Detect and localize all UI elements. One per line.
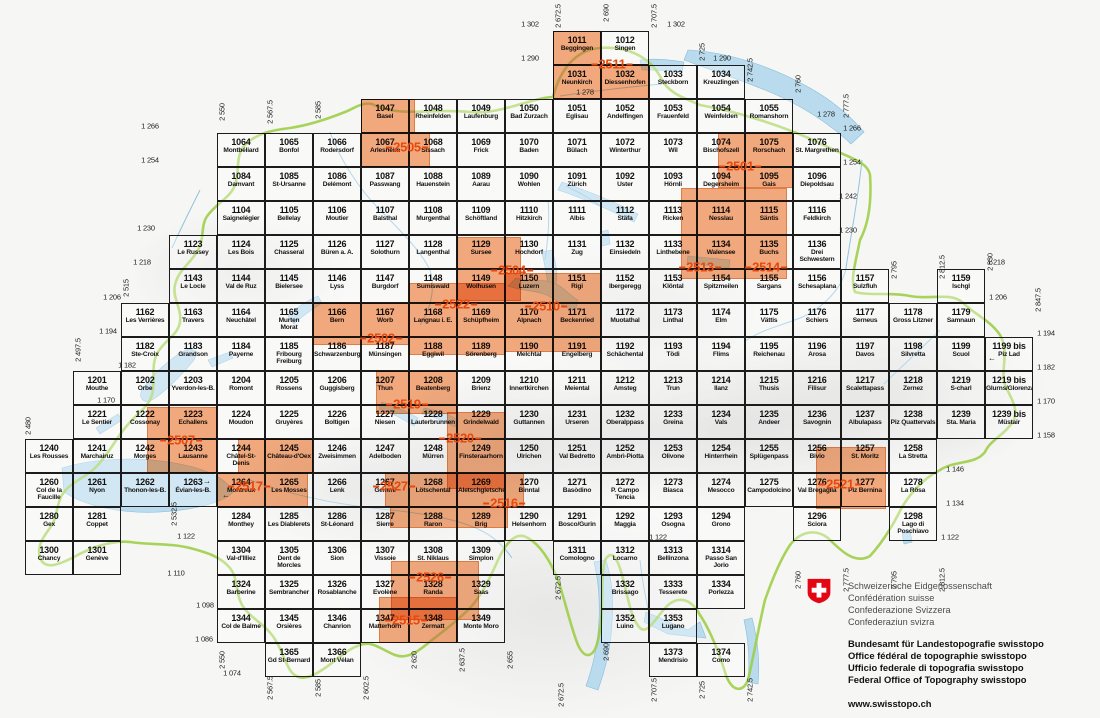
map-sheet-cell[interactable]: 1233Greina (649, 405, 697, 439)
map-sheet-cell[interactable]: 1352Luino (601, 609, 649, 643)
map-sheet-cell[interactable]: 1237Albulapass (841, 405, 889, 439)
sheet-name: Vals (698, 419, 744, 426)
sheet-name: Weinfelden (698, 113, 744, 120)
grid-coordinate-label: 2 550 (218, 651, 227, 669)
map-sheet-cell[interactable]: 1033Steckborn (649, 65, 697, 99)
sheet-name: Muotathal (602, 317, 648, 324)
sheet-name: Bellinzona (650, 555, 696, 562)
sheet-number: 1324 (218, 579, 264, 589)
sheet-name: Maggia (602, 521, 648, 528)
sheet-name: Glurns/Glorenza (986, 385, 1032, 392)
sheet-number: 1050 (506, 103, 552, 113)
map-sheet-cell[interactable]: 1215Thusis (745, 371, 793, 405)
map-sheet-cell[interactable]: 1092Uster (601, 167, 649, 201)
map-sheet-cell[interactable]: 1281Coppet (73, 507, 121, 541)
map-sheet-cell[interactable]: 1105Bellelay (265, 201, 313, 235)
map-sheet-cell[interactable]: 1300Chancy (25, 541, 73, 575)
map-sheet-cell[interactable]: 1230Guttannen (505, 405, 553, 439)
map-sheet-cell[interactable]: 1285Les Diablerets (265, 507, 313, 541)
map-sheet-cell[interactable]: 1221Le Sentier (73, 405, 121, 439)
map-sheet-cell[interactable]: 1334Porlezza (697, 575, 745, 609)
map-sheet-cell[interactable]: 1065Bonfol (265, 133, 313, 167)
map-sheet-cell[interactable]: 1296Sciora (793, 507, 841, 541)
sheet-name: Les Diablerets (266, 521, 312, 528)
sheet-name: Amsteg (602, 385, 648, 392)
map-sheet-cell[interactable]: 1332Brissago (601, 575, 649, 609)
map-sheet-cell[interactable]: 1266Lenk (313, 473, 361, 507)
map-sheet-cell[interactable]: 1176Schiers (793, 303, 841, 337)
sheet-number: 1230 (506, 409, 552, 419)
sheet-name: Como (698, 657, 744, 664)
map-sheet-cell[interactable]: 1274Mesocco (697, 473, 745, 507)
sheet-name: La Stretta (890, 453, 936, 460)
sheet-number: 1306 (314, 545, 360, 555)
grid-coordinate-label: 1 182 (1037, 363, 1055, 372)
map-sheet-cell[interactable]: 1284Monthey (217, 507, 265, 541)
sheet-name: Klöntal (650, 283, 696, 290)
sheet-name: Col de la Faucille (26, 487, 72, 501)
map-sheet-cell[interactable]: 1313Bellinzona (649, 541, 697, 575)
map-sheet-cell[interactable]: 1054Weinfelden (697, 99, 745, 133)
sheet-number: 1071 (554, 137, 600, 147)
sheet-name: Schwarzenburg (314, 351, 360, 358)
sheet-number: 1301 (74, 545, 120, 555)
sheet-name: La Rösa (890, 487, 936, 494)
sheet-number: 1214 (698, 375, 744, 385)
map-sheet-cell[interactable]: 1128Langenthal (409, 235, 457, 269)
map-sheet-cell[interactable]: 1286St-Léonard (313, 507, 361, 541)
grid-coordinate-label: 2 777.5 (842, 94, 851, 118)
sheet-number: 1311 (554, 545, 600, 555)
sheet-name: Sta. Maria (938, 419, 984, 426)
sheet-name: Grono (698, 521, 744, 528)
sheet-number: 1092 (602, 171, 648, 181)
map-sheet-cell[interactable]: 1203Yverdon-les-B. (169, 371, 217, 405)
map-sheet-cell[interactable]: 1051Eglisau (553, 99, 601, 133)
map-sheet-cell[interactable]: 1292Maggia (601, 507, 649, 541)
map-sheet-cell[interactable]: 1275Campodolcino (745, 473, 793, 507)
sheet-number: 1312 (602, 545, 648, 555)
map-sheet-cell[interactable]: 1084Damvant (217, 167, 265, 201)
map-sheet-cell[interactable]: 1254Hinterrhein (697, 439, 745, 473)
map-sheet-cell[interactable]: 1157Sulzfluh (841, 269, 889, 303)
map-sheet-cell[interactable]: 1224Moudon (217, 405, 265, 439)
sheet-name: Évian-les-B. (170, 487, 216, 494)
map-sheet-cell[interactable]: 1156Schesaplana (793, 269, 841, 303)
map-sheet-cell[interactable]: 1374Como (697, 643, 745, 677)
map-sheet-cell[interactable]: 1255Splügenpass (745, 439, 793, 473)
map-sheet-cell[interactable]: 1273Biasca (649, 473, 697, 507)
map-sheet-cell[interactable]: 1241Marchairuz (73, 439, 121, 473)
grid-coordinate-label: 1 194 (1037, 329, 1055, 338)
grid-coordinate-label: 2 532.5 (170, 502, 179, 526)
map-sheet-cell[interactable]: 1353Lugano (649, 609, 697, 643)
map-sheet-cell[interactable]: 1219 bisGlurns/Glorenza (985, 371, 1033, 405)
map-sheet-cell[interactable]: 1291Bosco/Gurin (553, 507, 601, 541)
sheet-name: Dent de Morcles (266, 555, 312, 569)
map-sheet-cell[interactable]: 1214Ilanz (697, 371, 745, 405)
map-sheet-cell[interactable]: 1325Sembrancher (265, 575, 313, 609)
sheet-name: Saignelégier (218, 215, 264, 222)
map-sheet-cell[interactable]: 1305Dent de Morcles (265, 541, 313, 575)
map-sheet-cell[interactable]: 1175Vättis (745, 303, 793, 337)
map-sheet-cell[interactable]: 1049Laufenburg (457, 99, 505, 133)
sheet-name: Bosco/Gurin (554, 521, 600, 528)
sheet-name: Albulapass (842, 419, 888, 426)
map-sheet-cell[interactable]: 1085St-Ursanne (265, 167, 313, 201)
map-sheet-cell[interactable]: 1116Feldkirch (793, 201, 841, 235)
map-sheet-cell[interactable]: 1185Fribourg Freiburg (265, 337, 313, 371)
sheet-name: Sulzfluh (842, 283, 888, 290)
sheet-number: 1185 (266, 341, 312, 351)
map-sheet-cell[interactable]: 1107Balsthal (361, 201, 409, 235)
sheet-name: Murgenthal (410, 215, 456, 222)
sheet-number: 1271 (554, 477, 600, 487)
sheet-number: 1164 (218, 307, 264, 317)
sheet-number: 1199 (938, 341, 984, 351)
map-sheet-cell[interactable]: 1294Grono (697, 507, 745, 541)
map-sheet-cell[interactable]: 1304Val-d'Illiez (217, 541, 265, 575)
map-sheet-cell[interactable]: 1072Winterthur (601, 133, 649, 167)
map-sheet-cell[interactable]: 1152Ibergeregg (601, 269, 649, 303)
map-sheet-cell[interactable]: 1104Saignelégier (217, 201, 265, 235)
map-sheet-cell[interactable]: 1218Zernez (889, 371, 937, 405)
map-sheet-cell[interactable]: 1197Davos (841, 337, 889, 371)
map-sheet-cell[interactable]: 1106Moutier (313, 201, 361, 235)
composite-sheet-number: 2505 (385, 140, 429, 155)
map-sheet-cell[interactable]: 1089Aarau (457, 167, 505, 201)
map-sheet-cell[interactable]: 1258La Stretta (889, 439, 937, 473)
composite-sheet-number: 2514 (744, 260, 788, 275)
map-sheet-cell[interactable]: 1235Andeer (745, 405, 793, 439)
map-sheet-cell[interactable]: 1132Einsiedeln (601, 235, 649, 269)
map-sheet-cell[interactable]: 1202Orbe (121, 371, 169, 405)
map-sheet-cell[interactable]: 1173Linthal (649, 303, 697, 337)
sheet-number: 1226 (314, 409, 360, 419)
map-sheet-cell[interactable]: 1090Wohlen (505, 167, 553, 201)
map-sheet-cell[interactable]: 1333Tesserete (649, 575, 697, 609)
map-sheet-cell[interactable]: 1365Gd St-Bernard (265, 643, 313, 677)
map-sheet-cell[interactable]: 1280Gex (25, 507, 73, 541)
sheet-number: 1048 (410, 103, 456, 113)
map-sheet-cell[interactable]: 1199Scuol (937, 337, 985, 371)
map-sheet-cell[interactable]: 1198Silvretta (889, 337, 937, 371)
map-sheet-cell[interactable]: 1066Rodersdorf (313, 133, 361, 167)
sheet-link-arrow: → (203, 477, 211, 486)
map-sheet-cell[interactable]: 1298Lago di Poschiavo (889, 507, 937, 541)
map-sheet-cell[interactable]: 1193Tödi (649, 337, 697, 371)
map-sheet-cell[interactable]: 1262Thonon-les-B. (121, 473, 169, 507)
map-sheet-cell[interactable]: 1145Bielersee (265, 269, 313, 303)
map-sheet-cell[interactable]: 1271Basòdino (553, 473, 601, 507)
sheet-number: 1066 (314, 137, 360, 147)
composite-sheet-number: 2521 (818, 477, 862, 492)
sheet-number: 1231 (554, 409, 600, 419)
map-sheet-cell[interactable]: 1234Vals (697, 405, 745, 439)
grid-coordinate-label: 1 230 (839, 226, 857, 235)
map-sheet-cell[interactable]: 1366Mont Vélan (313, 643, 361, 677)
map-sheet-cell[interactable]: 1108Murgenthal (409, 201, 457, 235)
map-sheet-cell[interactable]: 1110Hitzkirch (505, 201, 553, 235)
grid-coordinate-label: 1 074 (223, 669, 241, 678)
sheet-number: 1225 (266, 409, 312, 419)
sheet-name: Le Sentier (74, 419, 120, 426)
map-sheet-cell[interactable]: 1217Scalettapass (841, 371, 889, 405)
map-sheet-cell[interactable]: 1312Locarno (601, 541, 649, 575)
map-sheet-cell[interactable]: 1177Serneus (841, 303, 889, 337)
map-sheet-cell[interactable]: 1314Passo San Jorio (697, 541, 745, 575)
sheet-name: Savognin (794, 419, 840, 426)
sheet-number: 1128 (410, 239, 456, 249)
sheet-number: 1353 (650, 613, 696, 623)
map-sheet-cell[interactable]: 1261Nyon (73, 473, 121, 507)
composite-sheet-number: 2520 (438, 431, 482, 446)
grid-coordinate-label: 2 480 (24, 417, 33, 435)
sheet-number: 1326 (314, 579, 360, 589)
map-sheet-cell[interactable]: 1055Romanshorn (745, 99, 793, 133)
map-sheet-cell[interactable]: 1179Samnaun (937, 303, 985, 337)
map-sheet-cell[interactable]: 1178Gross Litzner (889, 303, 937, 337)
sheet-number: 1292 (602, 511, 648, 521)
composite-sheet-number: 2513 (678, 260, 722, 275)
sheet-name: Ibergeregg (602, 283, 648, 290)
sheet-number: 1162 (122, 307, 168, 317)
sheet-name: Serneus (842, 317, 888, 324)
composite-sheet-number: 2507 (159, 433, 203, 448)
map-sheet-cell[interactable]: 1165Murten Morat (265, 303, 313, 337)
sheet-name: Mesocco (698, 487, 744, 494)
map-sheet-cell[interactable]: 1210Innertkirchen (505, 371, 553, 405)
map-sheet-cell[interactable]: 1147Burgdorf (361, 269, 409, 303)
grid-coordinate-label: 2 497.5 (74, 338, 83, 362)
sheet-number: 1193 (650, 341, 696, 351)
map-sheet-cell[interactable]: 1219S-charl (937, 371, 985, 405)
sheet-number: 1174 (698, 307, 744, 317)
map-sheet-cell[interactable]: 1272P. Campo Tencia (601, 473, 649, 507)
map-sheet-cell[interactable]: 1216Filisur (793, 371, 841, 405)
sheet-number: 1157 (842, 273, 888, 283)
sheet-number: 1199 bis (986, 341, 1032, 351)
map-sheet-cell[interactable]: 1212Amsteg (601, 371, 649, 405)
grid-coordinate-label: 1 218 (133, 258, 151, 267)
sheet-number: 1012 (602, 35, 648, 45)
map-sheet-cell[interactable]: 1236Savognin (793, 405, 841, 439)
sheet-name: Genève (74, 555, 120, 562)
map-sheet-cell[interactable]: 1346Chanrion (313, 609, 361, 643)
map-sheet-cell[interactable]: 1238Piz Quattervals (889, 405, 937, 439)
map-sheet-cell[interactable]: 1131Zug (553, 235, 601, 269)
map-sheet-cell[interactable]: 1096Diepoldsau (793, 167, 841, 201)
sheet-number: 1116 (794, 205, 840, 215)
map-sheet-cell[interactable]: 1344Col de Balme (217, 609, 265, 643)
map-sheet-cell[interactable]: 1194Flims (697, 337, 745, 371)
map-sheet-cell[interactable]: 1311Comologno (553, 541, 601, 575)
map-sheet-cell[interactable]: 1195Reichenau (745, 337, 793, 371)
sheet-name: Olivone (650, 453, 696, 460)
map-sheet-cell[interactable]: 1087Passwang (361, 167, 409, 201)
sheet-number: 1084 (218, 171, 264, 181)
grid-coordinate-label: 1 302 (667, 20, 685, 29)
map-sheet-cell[interactable]: 1123Le Russey (169, 235, 217, 269)
sheet-number: 1374 (698, 647, 744, 657)
map-sheet-cell[interactable]: 1174Elm (697, 303, 745, 337)
map-sheet-cell[interactable]: 1112Stäfa (601, 201, 649, 235)
map-sheet-cell[interactable]: 1070Baden (505, 133, 553, 167)
map-sheet-cell[interactable]: 1124Les Bois (217, 235, 265, 269)
grid-coordinate-label: 1 194 (99, 327, 117, 336)
map-sheet-cell[interactable]: 1136Drei Schwestern (793, 235, 841, 269)
map-sheet-cell[interactable]: 1206Guggisberg (313, 371, 361, 405)
sheet-name: Reichenau (746, 351, 792, 358)
map-sheet-cell[interactable]: 1125Chasseral (265, 235, 313, 269)
sheet-number: 1073 (650, 137, 696, 147)
sheet-number: 1054 (698, 103, 744, 113)
map-sheet-cell[interactable]: 1246Zweisimmen (313, 439, 361, 473)
map-sheet-cell[interactable]: 1326Rosablanche (313, 575, 361, 609)
sheet-number: 1165 (266, 307, 312, 317)
sheet-name: Müstair (986, 419, 1032, 426)
map-sheet-cell[interactable]: 1252Ambrì-Piotta (601, 439, 649, 473)
map-sheet-cell[interactable]: 1225Gruyères (265, 405, 313, 439)
map-sheet-cell[interactable]: 1076St. Margrethen (793, 133, 841, 167)
sheet-number: 1204 (218, 375, 264, 385)
map-sheet-cell[interactable]: 1064Montbéliard (217, 133, 265, 167)
map-sheet-cell[interactable]: 1091Zürich (553, 167, 601, 201)
map-sheet-cell[interactable]: 1034Kreuzlingen (697, 65, 745, 99)
map-sheet-cell[interactable]: 1127Solothurn (361, 235, 409, 269)
map-sheet-cell[interactable]: 1345Orsières (265, 609, 313, 643)
sheet-number: 1314 (698, 545, 744, 555)
map-sheet-cell[interactable]: 1073Wil (649, 133, 697, 167)
sheet-number: 1273 (650, 477, 696, 487)
map-sheet-cell[interactable]: 1301Genève (73, 541, 121, 575)
sheet-name: P. Campo Tencia (602, 487, 648, 501)
sheet-name: Solothurn (362, 249, 408, 256)
map-sheet-cell[interactable]: 1192Schächental (601, 337, 649, 371)
map-sheet-cell[interactable]: 1209Brienz (457, 371, 505, 405)
map-sheet-cell[interactable]: 1052Andelfingen (601, 99, 649, 133)
sheet-name: Gd St-Bernard (266, 657, 312, 664)
sheet-name: Gruyères (266, 419, 312, 426)
map-sheet-cell[interactable]: 1109Schöftland (457, 201, 505, 235)
map-sheet-cell[interactable]: 1290Helsenhorn (505, 507, 553, 541)
sheet-number: 1086 (314, 171, 360, 181)
map-sheet-cell[interactable]: 1260Col de la Faucille (25, 473, 73, 507)
map-sheet-cell[interactable]: 1213Trun (649, 371, 697, 405)
map-sheet-cell[interactable]: 1251Val Bedretto (553, 439, 601, 473)
map-sheet-cell[interactable]: 1143Le Locle (169, 269, 217, 303)
sheet-name: Schöftland (458, 215, 504, 222)
office-name-it: Ufficio federale di topografia swisstopo (848, 662, 1024, 674)
map-sheet-cell[interactable]: 1226Boltigen (313, 405, 361, 439)
sheet-name: Elm (698, 317, 744, 324)
sheet-name: St-Ursanne (266, 181, 312, 188)
sheet-number: 1183 (170, 341, 216, 351)
map-sheet-cell[interactable]: 1205Rossens (265, 371, 313, 405)
grid-coordinate-label: 1 170 (1037, 397, 1055, 406)
grid-coordinate-label: 1 110 (167, 569, 184, 578)
map-sheet-cell[interactable]: 1253Olivone (649, 439, 697, 473)
sheet-name: Zernez (890, 385, 936, 392)
sheet-name: Zweisimmen (314, 453, 360, 460)
sheet-name: Andeer (746, 419, 792, 426)
website-link[interactable]: www.swisstopo.ch (848, 698, 932, 710)
sheet-name: Drei Schwestern (794, 249, 840, 263)
sheet-name: Le Locle (170, 283, 216, 290)
map-sheet-cell[interactable]: 1211Meiental (553, 371, 601, 405)
sheet-number: 1206 (314, 375, 360, 385)
grid-coordinate-label: 2 742.5 (746, 678, 755, 702)
grid-coordinate-label: 2 672.5 (554, 4, 563, 28)
map-sheet-cell[interactable]: 1144Val de Ruz (217, 269, 265, 303)
sheet-name: Les Bois (218, 249, 264, 256)
map-sheet-cell[interactable]: 1373Mendrisio (649, 643, 697, 677)
grid-coordinate-label: 1 206 (989, 293, 1007, 302)
sheet-number: 1239 (938, 409, 984, 419)
map-sheet-cell[interactable]: 1250Ulrichen (505, 439, 553, 473)
grid-coordinate-label: 2 655 (506, 651, 515, 669)
sheet-number: 1293 (650, 511, 696, 521)
composite-sheet-number: 2502 (359, 331, 403, 346)
map-sheet-cell[interactable]: 1306Sion (313, 541, 361, 575)
map-sheet-cell[interactable]: 1196Arosa (793, 337, 841, 371)
map-sheet-cell[interactable]: 1172Muotathal (601, 303, 649, 337)
sheet-number: 1132 (602, 239, 648, 249)
map-sheet-cell[interactable]: 1086Delémont (313, 167, 361, 201)
map-sheet-cell[interactable]: 1231Urseren (553, 405, 601, 439)
map-sheet-cell[interactable]: 1146Lyss (313, 269, 361, 303)
map-sheet-cell[interactable]: 1053Frauenfeld (649, 99, 697, 133)
sheet-name: Arosa (794, 351, 840, 358)
map-sheet-cell[interactable]: 1069Frick (457, 133, 505, 167)
map-sheet-cell[interactable]: 1240Les Rousses (25, 439, 73, 473)
map-sheet-cell[interactable]: 1278La Rösa (889, 473, 937, 507)
sheet-name: Scalettapass (842, 385, 888, 392)
sheet-name: Damvant (218, 181, 264, 188)
sheet-name: Andelfingen (602, 113, 648, 120)
map-sheet-cell[interactable]: 1247Adelboden (361, 439, 409, 473)
grid-coordinate-label: 1 170 (97, 396, 115, 405)
map-sheet-cell[interactable]: 1183Grandson (169, 337, 217, 371)
sheet-name: Moudon (218, 419, 264, 426)
sheet-name: Gross Litzner (890, 317, 936, 324)
map-sheet-cell[interactable]: 1204Romont (217, 371, 265, 405)
map-sheet-cell[interactable]: 1239Sta. Maria (937, 405, 985, 439)
grid-coordinate-label: 2 515 (122, 279, 131, 297)
map-sheet-cell[interactable]: 1050Bad Zurzach (505, 99, 553, 133)
sheet-name: Murten Morat (266, 317, 312, 331)
map-sheet-cell[interactable]: 1184Payerne (217, 337, 265, 371)
map-sheet-cell[interactable]: 1088Hauenstein (409, 167, 457, 201)
sheet-name: Passwang (362, 181, 408, 188)
sheet-name: Melchtal (506, 351, 552, 358)
map-sheet-cell[interactable]: 1163Travers (169, 303, 217, 337)
sheet-number: 1215 (746, 375, 792, 385)
map-sheet-cell[interactable]: 1162Les Verrières (121, 303, 169, 337)
composite-sheet-number: 2510 (524, 299, 568, 314)
map-sheet-cell[interactable]: 1232Oberalppass (601, 405, 649, 439)
map-sheet-cell[interactable]: 1048Rheinfelden (409, 99, 457, 133)
map-sheet-cell[interactable]: 1126Büren a. A. (313, 235, 361, 269)
sheet-name: Wil (650, 147, 696, 154)
map-sheet-cell[interactable]: 1111Albis (553, 201, 601, 235)
map-sheet-cell[interactable]: 1071Bülach (553, 133, 601, 167)
sheet-number: 1235 (746, 409, 792, 419)
sheet-name: Einsiedeln (602, 249, 648, 256)
map-sheet-cell[interactable]: 1239 bisMüstair (985, 405, 1033, 439)
map-sheet-cell[interactable]: 1324Barberine (217, 575, 265, 609)
map-sheet-cell[interactable]: 1164Neuchâtel (217, 303, 265, 337)
